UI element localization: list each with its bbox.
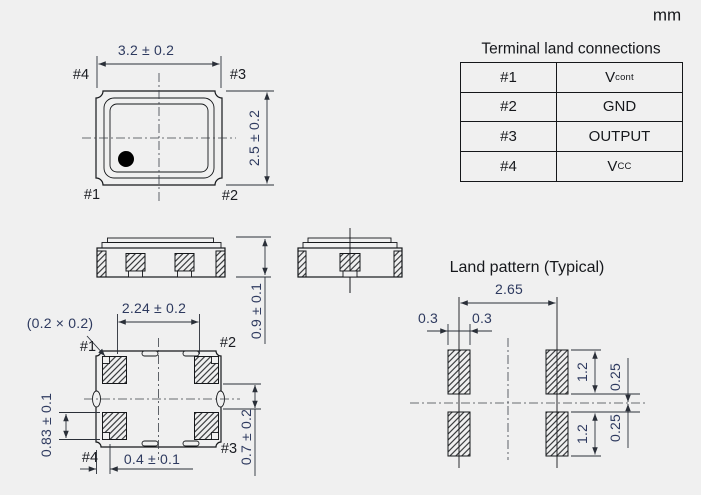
- terminal-land-connections-table: #1 Vcont #2 GND #3 OUTPUT #4 VCC: [460, 62, 683, 182]
- bottom-pad: [126, 254, 145, 272]
- land-pattern-center-gap-top-dimension: 0.25: [608, 363, 622, 391]
- table-cell-terminal: #1: [461, 63, 557, 93]
- bottom-view-notch-dimension: (0.2 × 0.2): [27, 316, 93, 330]
- pad-1-notch: [103, 357, 110, 364]
- edge-cutout: [142, 351, 158, 356]
- bottom-view-pin4-label: #4: [82, 451, 98, 466]
- body: [97, 248, 225, 277]
- top-view-width-dimension: 3.2 ± 0.2: [118, 43, 174, 57]
- land-pad-top-right: [546, 350, 568, 394]
- top-view-pin1-label: #1: [84, 188, 100, 203]
- table-cell-signal: VCC: [557, 152, 682, 182]
- top-view-height-dimension: 2.5 ± 0.2: [247, 110, 261, 166]
- land-pattern-pad-length-top-dimension: 1.2: [575, 362, 589, 382]
- edge-cutout: [142, 441, 158, 446]
- bottom-pad: [175, 254, 194, 272]
- pad-3-notch: [212, 433, 219, 440]
- bottom-view-span-dimension: 2.24 ± 0.2: [122, 301, 186, 315]
- signal-main: OUTPUT: [589, 128, 651, 145]
- land-pad-bottom-right: [546, 412, 568, 456]
- right-terminal: [216, 251, 225, 277]
- left-terminal: [97, 251, 106, 277]
- right-terminal: [394, 251, 402, 277]
- top-view-pin3-label: #3: [230, 68, 246, 83]
- signal-main: V: [605, 69, 615, 86]
- pad-4-notch: [103, 433, 110, 440]
- side-view-height-dimension: 0.9 ± 0.1: [249, 283, 263, 339]
- signal-sub: CC: [617, 161, 631, 172]
- top-view-pin4-label: #4: [73, 68, 89, 83]
- terminal-table-title: Terminal land connections: [481, 41, 660, 57]
- signal-sub: cont: [615, 72, 634, 83]
- signal-main: V: [607, 158, 617, 175]
- pad-foot: [343, 271, 357, 277]
- table-cell-terminal: #4: [461, 152, 557, 182]
- lid-step-top: [308, 238, 391, 243]
- pad-foot: [129, 271, 143, 277]
- lid-step-top: [108, 238, 214, 243]
- pad-foot: [178, 271, 192, 277]
- land-pattern-pitch-dimension: 2.65: [495, 282, 523, 296]
- table-cell-terminal: #2: [461, 93, 557, 123]
- table-cell-terminal: #3: [461, 122, 557, 152]
- land-pattern-title: Land pattern (Typical): [450, 260, 605, 276]
- bottom-view-pin2-label: #2: [220, 336, 236, 351]
- top-view-pin2-label: #2: [222, 189, 238, 204]
- pin1-marker-dot: [118, 151, 134, 167]
- table-cell-signal: GND: [557, 93, 682, 123]
- pad-2-notch: [212, 357, 219, 364]
- bottom-view-pin1-label: #1: [80, 340, 96, 355]
- side-view-front-drawing: [97, 238, 225, 277]
- land-pad-bottom-left: [448, 412, 470, 456]
- left-terminal: [298, 251, 306, 277]
- side-view-side-drawing: [298, 228, 402, 293]
- unit-label: mm: [653, 7, 681, 24]
- land-pattern-halfwidth-right-dimension: 0.3: [472, 311, 492, 325]
- land-pattern-center-gap-bottom-dimension: 0.25: [608, 414, 622, 442]
- land-pad-top-left: [448, 350, 470, 394]
- drawing-sheet: mm Terminal land connections #1 Vcont #2…: [0, 0, 701, 495]
- land-pattern-pad-length-bottom-dimension: 1.2: [575, 424, 589, 444]
- bottom-view-pin3-label: #3: [221, 442, 237, 457]
- table-cell-signal: OUTPUT: [557, 122, 682, 152]
- lid-step: [102, 243, 221, 249]
- table-cell-signal: Vcont: [557, 63, 682, 93]
- land-pattern-halfwidth-left-dimension: 0.3: [418, 311, 438, 325]
- bottom-view-pad-height-dimension: 0.83 ± 0.1: [39, 393, 53, 457]
- signal-main: GND: [603, 98, 636, 115]
- edge-cutout: [183, 441, 199, 446]
- edge-cutout: [183, 351, 199, 356]
- bottom-view-pad-gap-dimension: 0.7 ± 0.2: [239, 409, 253, 465]
- bottom-pad: [340, 254, 360, 272]
- bottom-view-pad-offset-dimension: 0.4 ± 0.1: [124, 452, 180, 466]
